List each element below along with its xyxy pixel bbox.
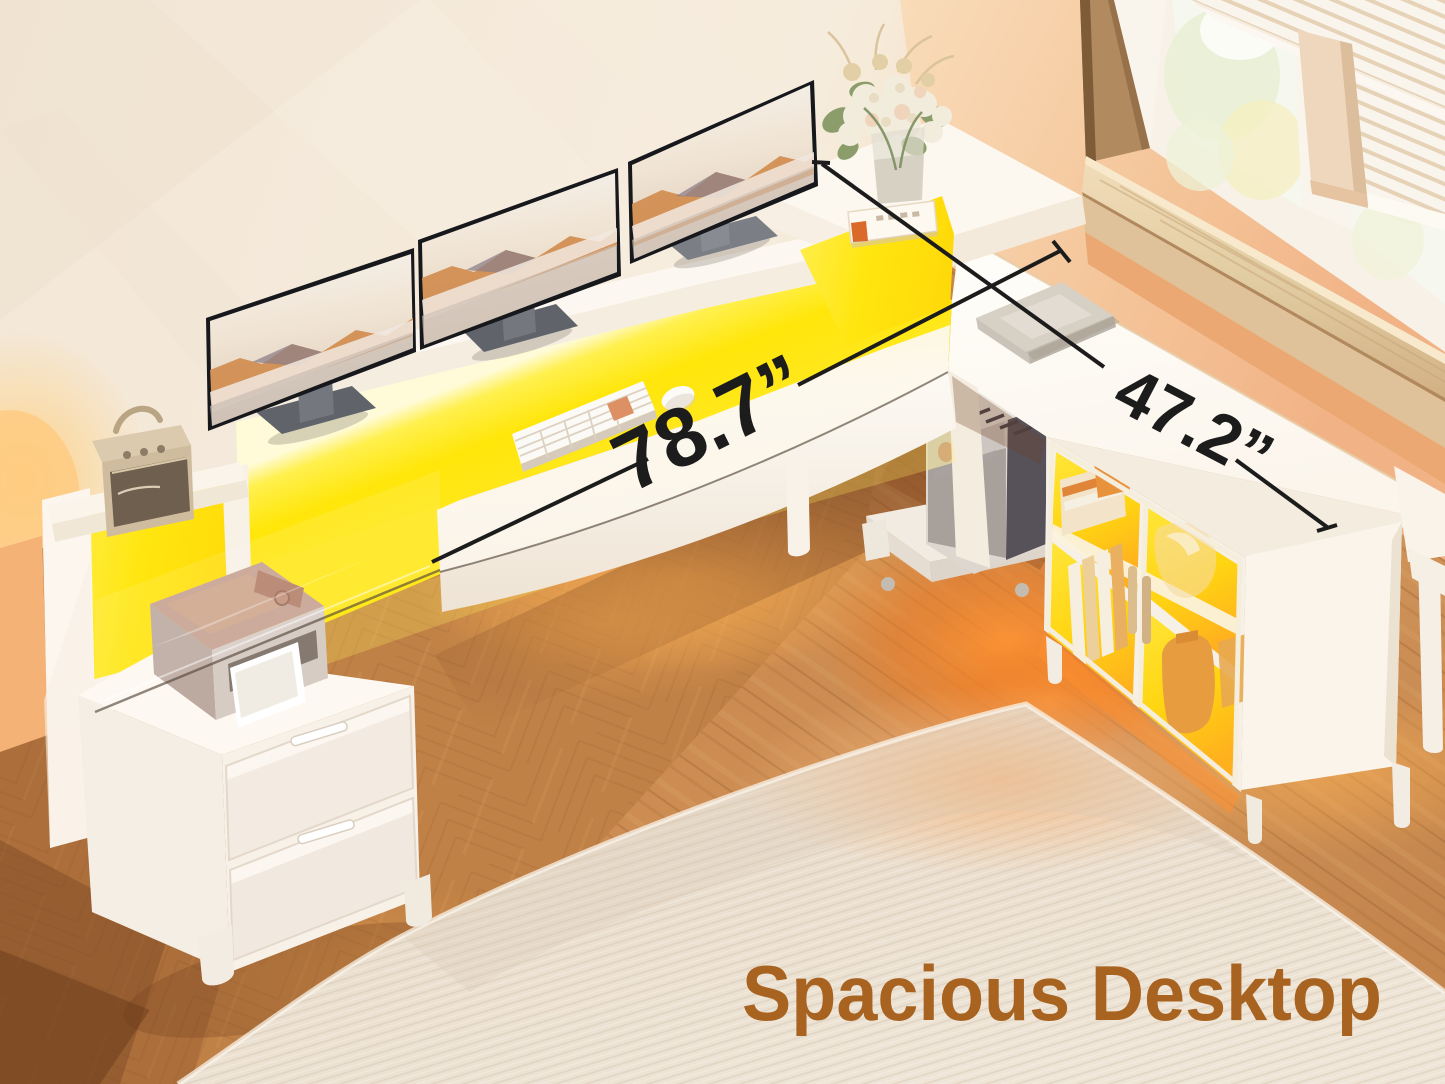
svg-text:Spacious Desktop: Spacious Desktop xyxy=(742,949,1382,1037)
